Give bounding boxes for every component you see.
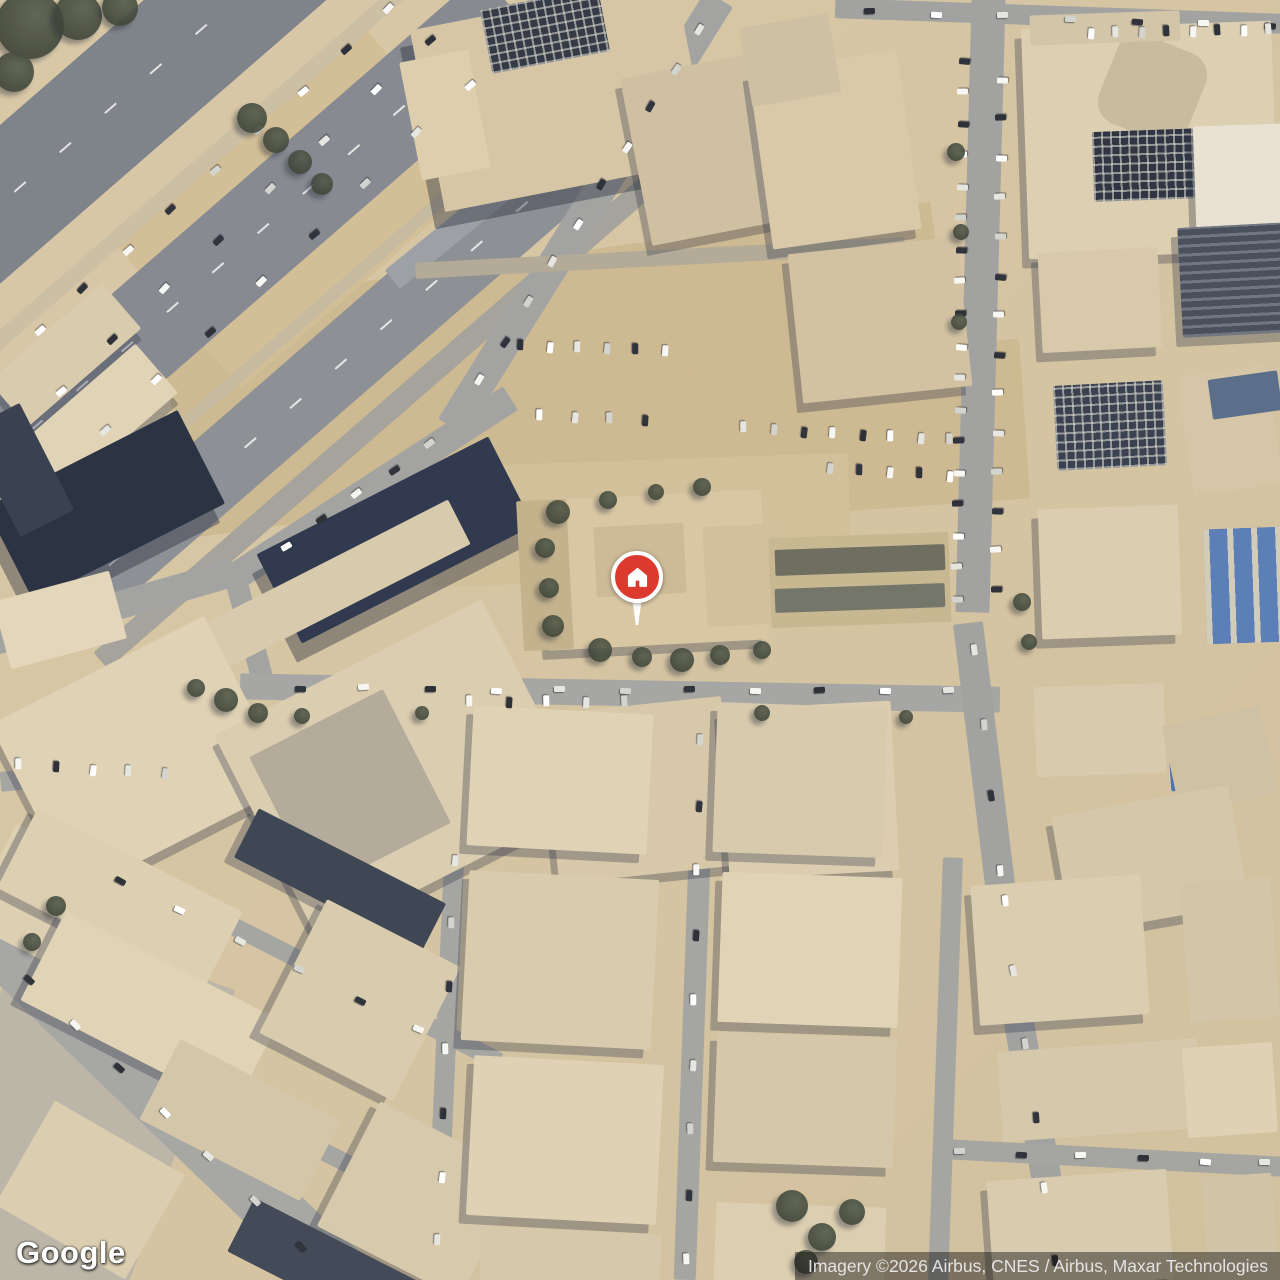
car xyxy=(995,115,1006,121)
tree xyxy=(632,647,652,667)
car xyxy=(620,687,631,693)
car xyxy=(1215,24,1221,35)
home-icon xyxy=(624,564,651,591)
tree xyxy=(539,578,559,598)
tree xyxy=(710,645,730,665)
building xyxy=(717,872,902,1028)
tree xyxy=(415,706,429,720)
car xyxy=(916,467,922,478)
building xyxy=(997,1038,1203,1142)
car xyxy=(490,687,501,693)
car xyxy=(950,564,961,570)
tree xyxy=(46,896,66,916)
car xyxy=(690,1060,696,1071)
tree xyxy=(1013,593,1031,611)
tree xyxy=(187,679,205,697)
car xyxy=(358,684,369,690)
tree xyxy=(248,703,268,723)
tree xyxy=(951,314,967,330)
tree xyxy=(754,705,770,721)
tree xyxy=(648,484,664,500)
place-marker[interactable] xyxy=(611,551,663,631)
car xyxy=(994,353,1005,359)
car xyxy=(954,375,965,381)
car xyxy=(993,431,1004,437)
car xyxy=(606,412,612,423)
car xyxy=(957,89,968,95)
tree xyxy=(776,1190,808,1222)
tree xyxy=(0,52,34,92)
car xyxy=(991,468,1002,474)
car xyxy=(547,342,554,354)
car xyxy=(53,761,59,772)
car xyxy=(507,697,513,708)
car xyxy=(995,234,1006,240)
car xyxy=(750,688,761,694)
car xyxy=(441,1108,447,1119)
building xyxy=(1203,526,1280,644)
building xyxy=(466,1055,664,1225)
car xyxy=(958,121,969,127)
building xyxy=(1182,1042,1278,1138)
building xyxy=(478,1225,662,1280)
building xyxy=(1030,10,1181,45)
car xyxy=(691,994,697,1005)
car xyxy=(954,1148,965,1154)
car xyxy=(1242,25,1248,36)
car xyxy=(813,686,824,692)
car xyxy=(694,864,700,875)
tree xyxy=(288,150,312,174)
car xyxy=(860,430,867,442)
car xyxy=(697,734,703,745)
car xyxy=(1113,26,1119,37)
attribution-text: Imagery ©2026 Airbus, CNES / Airbus, Max… xyxy=(808,1256,1268,1277)
car xyxy=(684,1253,690,1264)
car xyxy=(918,433,925,444)
map-canvas[interactable]: Google Imagery ©2026 Airbus, CNES / Airb… xyxy=(0,0,1280,1280)
building xyxy=(461,870,660,1050)
car xyxy=(1075,1152,1086,1158)
car xyxy=(953,438,964,444)
tree xyxy=(311,173,333,195)
car xyxy=(125,765,131,776)
tree xyxy=(693,478,711,496)
car xyxy=(575,341,581,352)
building xyxy=(739,13,842,107)
car xyxy=(996,156,1007,162)
car xyxy=(687,1190,693,1201)
car xyxy=(684,686,695,692)
tree xyxy=(542,615,564,637)
car xyxy=(951,597,962,603)
car xyxy=(956,248,967,254)
car xyxy=(1022,1038,1029,1050)
car xyxy=(1197,20,1208,26)
car xyxy=(633,343,639,354)
tree xyxy=(23,933,41,951)
car xyxy=(856,464,862,475)
car xyxy=(447,981,453,992)
car xyxy=(943,686,954,692)
car xyxy=(537,409,543,420)
car xyxy=(997,865,1003,876)
car xyxy=(687,1123,693,1134)
tree xyxy=(947,143,965,161)
car xyxy=(888,430,894,441)
car xyxy=(452,855,458,866)
car xyxy=(955,344,966,350)
building xyxy=(712,702,887,858)
car xyxy=(439,1172,446,1184)
tree xyxy=(263,127,289,153)
car xyxy=(693,930,699,941)
car xyxy=(993,312,1004,318)
car xyxy=(997,78,1008,84)
car xyxy=(741,421,747,432)
car xyxy=(931,11,942,17)
car xyxy=(435,1234,441,1245)
car xyxy=(1137,1155,1148,1161)
car xyxy=(544,695,550,706)
tree xyxy=(839,1199,865,1225)
car xyxy=(662,345,668,356)
tree xyxy=(670,648,694,672)
car xyxy=(952,534,963,540)
car xyxy=(995,274,1006,280)
car xyxy=(1164,25,1170,36)
building xyxy=(1180,877,1280,1023)
attribution-bar: Imagery ©2026 Airbus, CNES / Airbus, Max… xyxy=(795,1252,1280,1280)
building xyxy=(1033,683,1166,777)
car xyxy=(994,193,1005,199)
car xyxy=(992,509,1003,515)
car xyxy=(1199,1158,1211,1165)
car xyxy=(958,58,969,64)
car xyxy=(16,758,22,769)
car xyxy=(880,688,891,694)
road xyxy=(945,1139,1280,1177)
tree xyxy=(546,500,570,524)
tree xyxy=(214,688,238,712)
tree xyxy=(599,491,617,509)
car xyxy=(1259,1159,1270,1165)
road xyxy=(928,857,963,1280)
building xyxy=(1177,222,1280,338)
car xyxy=(448,917,454,928)
car xyxy=(554,686,565,692)
tree xyxy=(237,103,267,133)
building xyxy=(1092,128,1204,202)
car xyxy=(997,12,1008,18)
car xyxy=(424,686,435,692)
building xyxy=(788,237,973,404)
car xyxy=(572,412,578,423)
car xyxy=(954,407,965,413)
car xyxy=(1033,1112,1039,1123)
tree xyxy=(588,638,612,662)
tree xyxy=(54,0,102,40)
car xyxy=(990,546,1001,552)
car xyxy=(830,427,836,438)
google-logo[interactable]: Google xyxy=(16,1235,126,1271)
car xyxy=(947,471,953,482)
car xyxy=(946,433,952,444)
building xyxy=(713,1032,897,1168)
tree xyxy=(899,710,913,724)
car xyxy=(642,415,648,426)
car xyxy=(1139,27,1145,38)
car xyxy=(442,1043,448,1054)
car xyxy=(517,339,523,350)
tree xyxy=(1021,634,1037,650)
tree xyxy=(535,538,555,558)
car xyxy=(990,587,1001,593)
building xyxy=(1053,380,1167,471)
car xyxy=(955,215,966,221)
car xyxy=(953,471,964,477)
building xyxy=(1038,505,1182,640)
building xyxy=(970,874,1149,1026)
tree xyxy=(808,1223,836,1251)
car xyxy=(771,424,777,435)
car xyxy=(1191,26,1197,37)
building xyxy=(1037,247,1162,353)
car xyxy=(988,790,995,802)
car xyxy=(992,390,1003,396)
car xyxy=(954,278,965,284)
car xyxy=(1064,16,1075,22)
tree xyxy=(294,708,310,724)
marker-circle[interactable] xyxy=(611,551,663,603)
car xyxy=(952,501,963,507)
car xyxy=(295,685,306,691)
car xyxy=(981,719,987,730)
building xyxy=(466,705,653,854)
car xyxy=(467,695,473,706)
car xyxy=(584,697,590,708)
car xyxy=(957,185,968,191)
car xyxy=(621,695,627,706)
car xyxy=(1002,895,1009,907)
car xyxy=(864,8,875,14)
tree xyxy=(753,641,771,659)
car xyxy=(77,283,89,295)
car xyxy=(1016,1151,1027,1157)
tree xyxy=(953,224,969,240)
car xyxy=(1088,28,1094,39)
